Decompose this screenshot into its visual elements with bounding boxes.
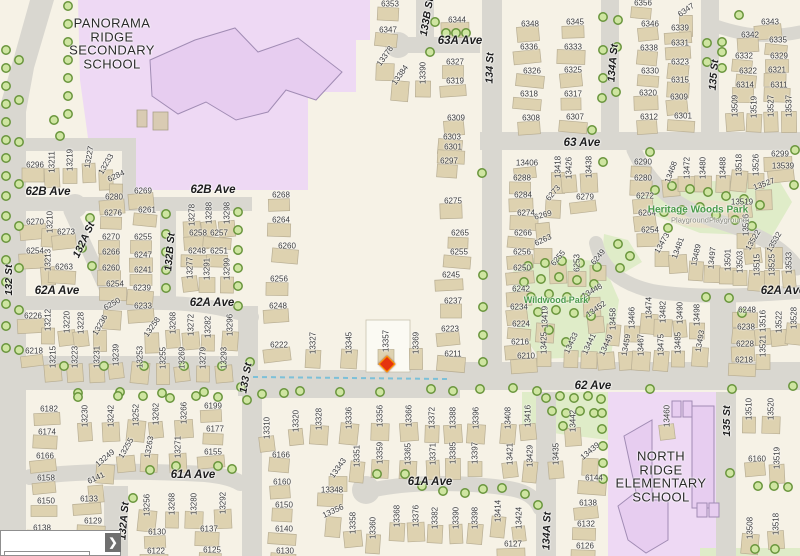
house-number-label: 13376 <box>412 505 421 527</box>
building <box>557 50 585 65</box>
tree-icon <box>146 466 154 474</box>
tree-icon <box>60 362 68 370</box>
house-number-label: 6321 <box>768 66 786 75</box>
house-number-label: 6257 <box>210 229 228 238</box>
house-number-label: 13320 <box>292 410 301 432</box>
house-number-label: 13527 <box>767 95 776 117</box>
tree-icon <box>479 358 487 366</box>
house-number-label: 13223 <box>71 346 80 368</box>
house-number-label: 6272 <box>636 192 654 201</box>
building <box>22 168 44 182</box>
building <box>272 508 293 522</box>
house-number-label: 6250 <box>513 264 531 273</box>
house-number-label: 6309 <box>670 93 688 102</box>
tree-icon <box>234 226 242 234</box>
house-number-label: 13509 <box>731 95 740 117</box>
tree-icon <box>192 392 200 400</box>
info-panel-secondary <box>4 551 90 556</box>
building <box>133 213 157 227</box>
house-number-label: 6332 <box>735 52 753 61</box>
avenue-label: 61A Ave <box>171 469 216 481</box>
tree-icon <box>612 88 620 96</box>
house-number-label: 13239 <box>112 344 121 366</box>
tree-icon <box>756 201 764 209</box>
tree-icon <box>15 180 23 188</box>
house-number-label: 6307 <box>566 113 584 122</box>
tree-icon <box>704 188 712 196</box>
house-number-label: 6233 <box>134 302 152 311</box>
map-canvas[interactable]: 6353634713378133841339063446327631963096… <box>0 0 800 556</box>
tree-icon <box>2 300 10 308</box>
house-number-label: 6297 <box>440 157 458 166</box>
house-number-label: 13424 <box>515 507 524 529</box>
tree-icon <box>158 389 166 397</box>
tree-icon <box>228 465 236 473</box>
tree-icon <box>552 306 560 314</box>
tree-icon <box>598 425 606 433</box>
house-number-label: 13510 <box>745 398 754 420</box>
house-number-label: 6228 <box>736 340 754 349</box>
house-number-label: 6331 <box>671 39 689 48</box>
house-number-label: 6226 <box>24 312 42 321</box>
tree-icon <box>784 483 792 491</box>
house-number-label: 6311 <box>770 81 787 90</box>
house-number-label: 13366 <box>405 405 414 427</box>
building <box>203 433 224 445</box>
house-number-label: 13467 <box>637 334 646 356</box>
building <box>195 532 219 547</box>
house-number-label: 13522 <box>775 311 784 333</box>
house-number-label: 6320 <box>639 89 657 98</box>
house-number-label: 13293 <box>220 347 229 369</box>
house-number-label: 6347 <box>379 26 397 35</box>
house-number-label: 6132 <box>577 520 595 529</box>
tree-icon <box>280 389 288 397</box>
house-number-label: 13460 <box>663 405 672 427</box>
house-number-label: 13385 <box>449 442 458 464</box>
tree-icon <box>790 181 798 189</box>
building <box>667 120 695 133</box>
building <box>559 120 588 133</box>
house-number-label: 6177 <box>206 425 224 434</box>
tree-icon <box>614 16 622 24</box>
house-number-label: 13220 <box>63 311 72 333</box>
house-number-label: 6343 <box>761 18 779 27</box>
house-number-label: 6166 <box>36 452 54 461</box>
house-number-label: 13521 <box>759 335 768 357</box>
building <box>571 550 595 556</box>
house-number-label: 13533 <box>785 252 794 274</box>
house-number-label: 6127 <box>504 540 522 549</box>
house-number-label: 13368 <box>393 505 402 527</box>
tree-icon <box>15 222 23 230</box>
building <box>655 252 669 267</box>
tree-icon <box>15 56 23 64</box>
house-number-label: 13472 <box>683 157 692 179</box>
tree-icon <box>771 545 779 553</box>
tree-icon <box>498 484 506 492</box>
house-number-label: 6256 <box>513 248 531 257</box>
building <box>744 461 765 477</box>
house-number-label: 6317 <box>564 90 582 99</box>
house-number-label: 6130 <box>276 547 294 556</box>
house-number-label: 6344 <box>448 16 466 25</box>
tree-icon <box>735 11 743 19</box>
house-number-label: 13310 <box>263 417 272 439</box>
tree-icon <box>449 387 457 395</box>
house-number-label: 6269 <box>134 187 152 196</box>
house-number-label: 13408 <box>504 407 513 429</box>
building <box>33 435 58 449</box>
house-number-label: 6327 <box>446 58 464 67</box>
house-number-label: 13458 <box>609 308 618 330</box>
house-number-label: 13498 <box>693 304 702 326</box>
house-number-label: 6126 <box>576 542 594 551</box>
street-label: 135 St <box>721 406 733 437</box>
house-number-label: 13255 <box>159 347 168 369</box>
tree-icon <box>200 388 208 396</box>
house-number-label: 6254 <box>106 280 124 289</box>
house-number-label: 13210 <box>46 211 55 233</box>
building <box>100 217 121 230</box>
house-number-label: 6248 <box>738 306 756 315</box>
house-number-label: 6150 <box>275 501 293 510</box>
house-number-label: 13279 <box>199 347 208 369</box>
house-number-label: 6253 <box>573 254 582 272</box>
tree-icon <box>243 396 251 404</box>
building <box>569 200 596 214</box>
house-number-label: 6158 <box>37 474 55 483</box>
house-number-label: 6125 <box>203 546 221 555</box>
house-number-label: 6256 <box>270 275 288 284</box>
house-number-label: 6274 <box>517 209 535 218</box>
tree-icon <box>718 38 726 46</box>
house-number-label: 13390 <box>419 62 428 84</box>
tree-icon <box>599 459 607 467</box>
house-number-label: 6224 <box>512 320 530 329</box>
avenue-label: 62A Ave <box>35 285 80 297</box>
house-number-label: 13272 <box>187 314 196 336</box>
house-number-label: 6255 <box>450 248 468 257</box>
tree-icon <box>541 259 549 267</box>
house-number-label: 13539 <box>772 162 794 171</box>
house-number-label: 13277 <box>186 257 195 279</box>
house-number-label: 13501 <box>724 249 733 271</box>
avenue-label: 63A Ave <box>438 35 483 47</box>
house-number-label: 13406 <box>516 159 538 168</box>
house-number-label: 13480 <box>699 157 708 179</box>
tree-icon <box>15 346 23 354</box>
tree-icon <box>162 210 170 218</box>
house-number-label: 6255 <box>134 233 152 242</box>
house-number-label: 6312 <box>640 113 658 122</box>
tree-icon <box>646 148 654 156</box>
house-number-label: 6218 <box>25 347 43 356</box>
house-number-label: 13438 <box>585 156 594 178</box>
street-label: 134A St <box>540 512 553 551</box>
tree-icon <box>114 392 122 400</box>
house-number-label: 13359 <box>376 442 385 464</box>
house-number-label: 13262 <box>152 403 161 425</box>
house-number-label: 13397 <box>471 442 480 464</box>
street-label: 132 St <box>3 265 15 296</box>
tree-icon <box>533 387 541 395</box>
house-number-label: 6330 <box>641 67 659 76</box>
house-number-label: 6140 <box>275 525 293 534</box>
building <box>268 533 297 546</box>
house-number-label: 6322 <box>739 67 757 76</box>
house-number-label: 13485 <box>674 332 683 354</box>
building <box>637 26 658 41</box>
house-number-label: 13490 <box>676 302 685 324</box>
building <box>266 282 288 295</box>
house-number-label: 6319 <box>446 77 464 86</box>
tree-icon <box>770 482 778 490</box>
house-number-label: 13418 <box>554 156 563 178</box>
building <box>637 75 659 88</box>
house-number-label: 13242 <box>107 405 116 427</box>
house-number-label: 6270 <box>102 233 120 242</box>
house-number-label: 6130 <box>148 528 166 537</box>
tree-icon <box>258 390 266 398</box>
building <box>518 121 541 136</box>
tree-icon <box>548 407 556 415</box>
tree-icon <box>537 275 545 283</box>
tree-icon <box>751 545 759 553</box>
house-number-label: 6248 <box>188 247 206 256</box>
house-number-label: 6245 <box>442 271 460 280</box>
tree-icon <box>2 172 10 180</box>
house-number-label: 13215 <box>49 346 58 368</box>
tree-icon <box>15 96 23 104</box>
house-number-label: 6329 <box>770 52 788 61</box>
tree-icon <box>166 394 174 402</box>
tree-icon <box>234 246 242 254</box>
tree-icon <box>426 48 434 56</box>
building <box>436 331 460 346</box>
tree-icon <box>129 494 137 502</box>
house-number-label: 13231 <box>93 346 102 368</box>
tree-icon <box>584 392 592 400</box>
tree-icon <box>702 293 710 301</box>
tree-icon <box>2 136 10 144</box>
house-number-label: 6301 <box>444 143 462 152</box>
building <box>263 309 289 324</box>
house-number-label: 13292 <box>219 492 228 514</box>
house-number-label: 6342 <box>741 31 759 40</box>
tree-icon <box>2 256 10 264</box>
house-number-label: 6260 <box>278 242 296 251</box>
house-number-label: 6326 <box>523 67 541 76</box>
tree-icon <box>234 208 242 216</box>
house-number-label: 13296 <box>226 314 235 336</box>
house-number-label: 13519 <box>773 447 782 469</box>
house-number-label: 6133 <box>80 495 98 504</box>
house-number-label: 13360 <box>369 517 378 539</box>
house-number-label: 6122 <box>147 547 165 556</box>
house-number-label: 13429 <box>526 445 535 467</box>
house-number-label: 13256 <box>143 494 152 516</box>
building <box>20 354 43 368</box>
house-number-label: 6299 <box>771 150 789 159</box>
street-label: 134 St <box>483 52 496 83</box>
tree-icon <box>791 146 799 154</box>
tree-icon <box>542 394 550 402</box>
house-number-label: 13230 <box>81 405 90 427</box>
house-number-label: 13298 <box>223 202 232 224</box>
house-number-label: 6315 <box>671 76 689 85</box>
house-number-label: 6166 <box>272 451 290 460</box>
house-number-label: 6308 <box>522 114 540 123</box>
tree-icon <box>722 192 730 200</box>
building <box>31 506 57 517</box>
tree-icon <box>64 74 72 82</box>
tree-icon <box>15 306 23 314</box>
tree-icon <box>234 282 242 290</box>
tree-icon <box>599 158 607 166</box>
house-number-label: 6296 <box>26 161 44 170</box>
house-number-label: 6323 <box>671 58 689 67</box>
tree-icon <box>2 82 10 90</box>
tree-icon <box>74 393 82 401</box>
house-number-label: 13419 <box>541 306 550 328</box>
tree-icon <box>376 388 384 396</box>
tree-icon <box>296 387 304 395</box>
house-number-label: 6239 <box>133 284 151 293</box>
house-number-label: 13528 <box>790 307 799 329</box>
house-number-label: 13518 <box>772 513 781 535</box>
house-number-label: 13351 <box>353 445 362 467</box>
house-number-label: 13515 <box>753 254 762 276</box>
house-number-label: 6345 <box>566 18 584 27</box>
tree-icon <box>2 64 10 72</box>
tree-icon <box>2 100 10 108</box>
house-number-label: 13357 <box>382 330 391 352</box>
house-number-label: 6270 <box>26 218 44 227</box>
house-number-label: 6290 <box>634 158 652 167</box>
house-number-label: 13421 <box>506 443 515 465</box>
building <box>440 85 467 98</box>
house-number-label: 13268 <box>169 312 178 334</box>
house-number-label: 6238 <box>737 323 755 332</box>
tree-icon <box>139 392 147 400</box>
house-number-label: 6242 <box>512 285 530 294</box>
tree-icon <box>2 46 10 54</box>
house-number-label: 6211 <box>444 350 461 359</box>
building <box>728 363 756 376</box>
tree-icon <box>590 409 598 417</box>
house-number-label: 13356 <box>376 405 385 427</box>
house-number-label: 6279 <box>576 193 594 202</box>
tree-icon <box>726 469 734 477</box>
house-number-label: 6284 <box>514 191 532 200</box>
playground-label: Playground <box>709 216 747 225</box>
tree-icon <box>509 384 517 392</box>
house-number-label: 13382 <box>431 507 440 529</box>
building <box>377 7 399 21</box>
house-number-label: 6273 <box>57 228 75 237</box>
building <box>631 7 652 20</box>
tree-icon <box>214 393 222 401</box>
tree-icon <box>439 487 447 495</box>
avenue-label: 61A Ave <box>408 476 453 488</box>
house-number-label: 13442 <box>569 410 578 432</box>
house-number-label: 6309 <box>447 114 465 123</box>
building <box>325 516 342 537</box>
house-number-label: 6247 <box>134 251 152 260</box>
tree-icon <box>479 271 487 279</box>
house-number-label: 6254 <box>641 226 659 235</box>
house-number-label: 13282 <box>204 316 213 338</box>
house-number-label: 13211 <box>48 151 57 173</box>
house-number-label: 6254 <box>26 247 44 256</box>
building <box>443 255 471 269</box>
house-number-label: 13219 <box>66 149 75 171</box>
house-number-label: 13288 <box>205 202 214 224</box>
house-number-label: 6241 <box>134 266 152 275</box>
house-number-label: 6314 <box>736 81 754 90</box>
house-number-label: 13475 <box>657 334 666 356</box>
playground-label: Playground <box>671 216 709 225</box>
building <box>441 304 462 318</box>
house-number-label: 6129 <box>84 517 102 526</box>
house-number-label: 13348 <box>321 486 343 495</box>
house-number-label: 6160 <box>748 455 766 464</box>
building <box>17 318 45 333</box>
house-number-label: 6356 <box>634 0 652 8</box>
building <box>737 37 759 52</box>
tree-icon <box>64 92 72 100</box>
house-number-label: 6353 <box>381 0 399 9</box>
building <box>561 98 581 110</box>
tree-icon <box>556 392 564 400</box>
building <box>435 279 464 291</box>
house-number-label: 13328 <box>315 408 324 430</box>
tree-icon <box>64 110 72 118</box>
tree-icon <box>588 126 596 134</box>
house-number-label: 6137 <box>200 525 218 534</box>
house-number-label: 6336 <box>520 43 538 52</box>
building <box>562 26 584 39</box>
house-number-label: 6276 <box>104 209 122 218</box>
house-number-label: 13466 <box>628 307 637 329</box>
house-number-label: 13516 <box>759 310 768 332</box>
tree-icon <box>336 388 344 396</box>
tree-icon <box>725 294 733 302</box>
tree-icon <box>555 273 563 281</box>
building <box>270 485 291 499</box>
house-number-label: 13388 <box>449 407 458 429</box>
tree-icon <box>598 94 606 102</box>
panel-expand-button[interactable]: ❯ <box>105 533 121 552</box>
house-number-label: 6318 <box>520 90 538 99</box>
house-number-label: 6258 <box>189 229 207 238</box>
house-number-label: 13425 <box>540 332 549 354</box>
tree-icon <box>570 309 578 317</box>
tree-icon <box>573 276 581 284</box>
tree-icon <box>373 470 381 478</box>
house-number-label: 13212 <box>44 309 53 331</box>
house-number-label: 13488 <box>719 157 728 179</box>
tree-icon <box>686 185 694 193</box>
tree-icon <box>2 212 10 220</box>
house-number-label: 13482 <box>659 301 668 323</box>
tree-icon <box>2 322 10 330</box>
tree-icon <box>2 192 10 200</box>
tree-icon <box>570 394 578 402</box>
tree-icon <box>521 490 529 498</box>
house-number-label: 6348 <box>521 20 539 29</box>
